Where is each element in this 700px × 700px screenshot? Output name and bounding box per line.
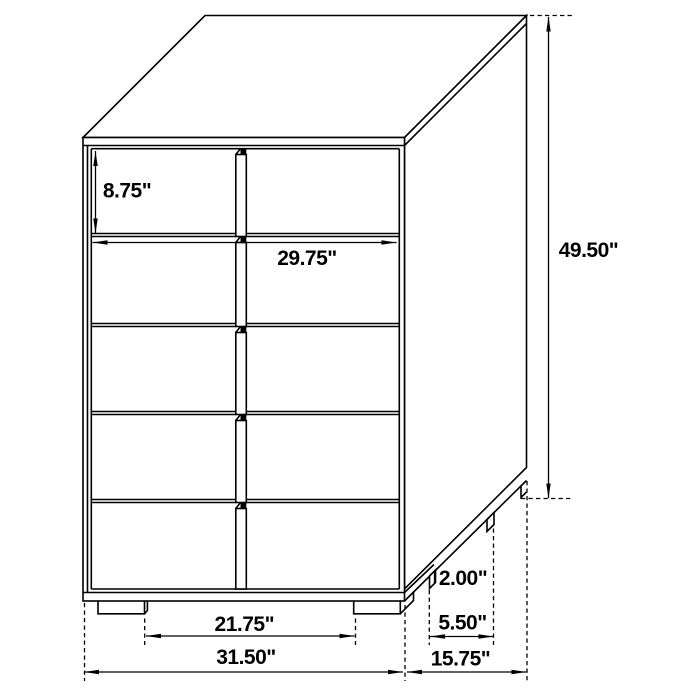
svg-text:2.00": 2.00" (439, 567, 487, 590)
svg-text:29.75": 29.75" (277, 247, 337, 270)
svg-text:31.50": 31.50" (216, 646, 276, 669)
svg-text:21.75": 21.75" (215, 613, 275, 636)
svg-text:5.50": 5.50" (438, 612, 486, 635)
svg-text:49.50": 49.50" (559, 239, 619, 262)
svg-text:15.75": 15.75" (431, 648, 491, 671)
svg-text:8.75": 8.75" (103, 180, 151, 203)
